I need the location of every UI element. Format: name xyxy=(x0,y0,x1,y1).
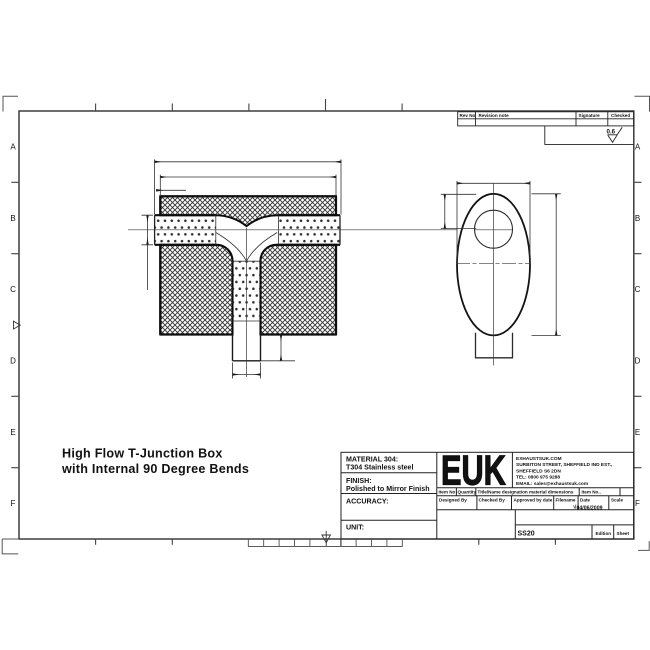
svg-text:Rev No: Rev No xyxy=(460,113,476,118)
svg-text:Item No..: Item No.. xyxy=(582,489,601,494)
svg-text:EXHAUSTSUK.COM: EXHAUSTSUK.COM xyxy=(516,456,562,462)
svg-text:B: B xyxy=(10,214,15,223)
svg-text:FINISH:: FINISH: xyxy=(346,477,372,485)
svg-text:MATERIAL 304:: MATERIAL 304: xyxy=(346,455,398,463)
svg-text:UNIT:: UNIT: xyxy=(346,523,364,531)
svg-text:F: F xyxy=(635,499,640,508)
svg-text:Signature: Signature xyxy=(579,113,601,118)
svg-text:Approved by date: Approved by date xyxy=(514,498,553,503)
svg-text:C: C xyxy=(635,285,641,294)
svg-text:Edition: Edition xyxy=(596,531,612,536)
svg-text:Scale: Scale xyxy=(611,498,623,503)
svg-text:04/06/2009: 04/06/2009 xyxy=(577,505,603,511)
svg-text:Designed By: Designed By xyxy=(439,498,467,503)
svg-text:A: A xyxy=(635,143,641,152)
svg-text:EUK: EUK xyxy=(441,447,506,494)
svg-text:SS20: SS20 xyxy=(518,531,535,538)
svg-text:EMAIL: sales@exhaustsuk.com: EMAIL: sales@exhaustsuk.com xyxy=(516,481,588,487)
svg-text:T304 Stainless steel: T304 Stainless steel xyxy=(346,464,413,472)
svg-text:Filename: Filename xyxy=(556,498,576,503)
svg-text:Title/Name designation materia: Title/Name designation material dimensio… xyxy=(478,489,574,494)
svg-text:Quantity: Quantity xyxy=(458,489,477,494)
svg-text:E: E xyxy=(10,428,15,437)
svg-text:Revision note: Revision note xyxy=(479,113,510,118)
svg-text:TEL: 0800 975 9288: TEL: 0800 975 9288 xyxy=(516,475,560,481)
svg-text:Item No: Item No xyxy=(439,489,456,494)
svg-text:A: A xyxy=(10,143,16,152)
svg-text:SURBITON STREET, SHEFFIELD IND: SURBITON STREET, SHEFFIELD IND EST., xyxy=(516,462,613,468)
svg-text:High Flow T-Junction Box: High Flow T-Junction Box xyxy=(62,446,223,460)
svg-text:E: E xyxy=(635,428,640,437)
svg-text:Checked: Checked xyxy=(611,113,630,118)
svg-text:B: B xyxy=(635,214,640,223)
svg-text:SHEFFIELD S6 2DN: SHEFFIELD S6 2DN xyxy=(516,468,561,474)
svg-text:Checked By: Checked By xyxy=(479,498,506,503)
svg-text:F: F xyxy=(11,499,16,508)
svg-text:Date: Date xyxy=(580,498,590,503)
svg-text:Sheet: Sheet xyxy=(617,531,630,536)
svg-text:C: C xyxy=(10,285,16,294)
svg-text:with Internal 90 Degree Bends: with Internal 90 Degree Bends xyxy=(61,462,249,476)
svg-text:D: D xyxy=(635,357,641,366)
svg-text:Polished to Mirror Finish: Polished to Mirror Finish xyxy=(346,485,430,493)
svg-text:D: D xyxy=(10,357,16,366)
svg-text:ACCURACY:: ACCURACY: xyxy=(346,497,388,505)
